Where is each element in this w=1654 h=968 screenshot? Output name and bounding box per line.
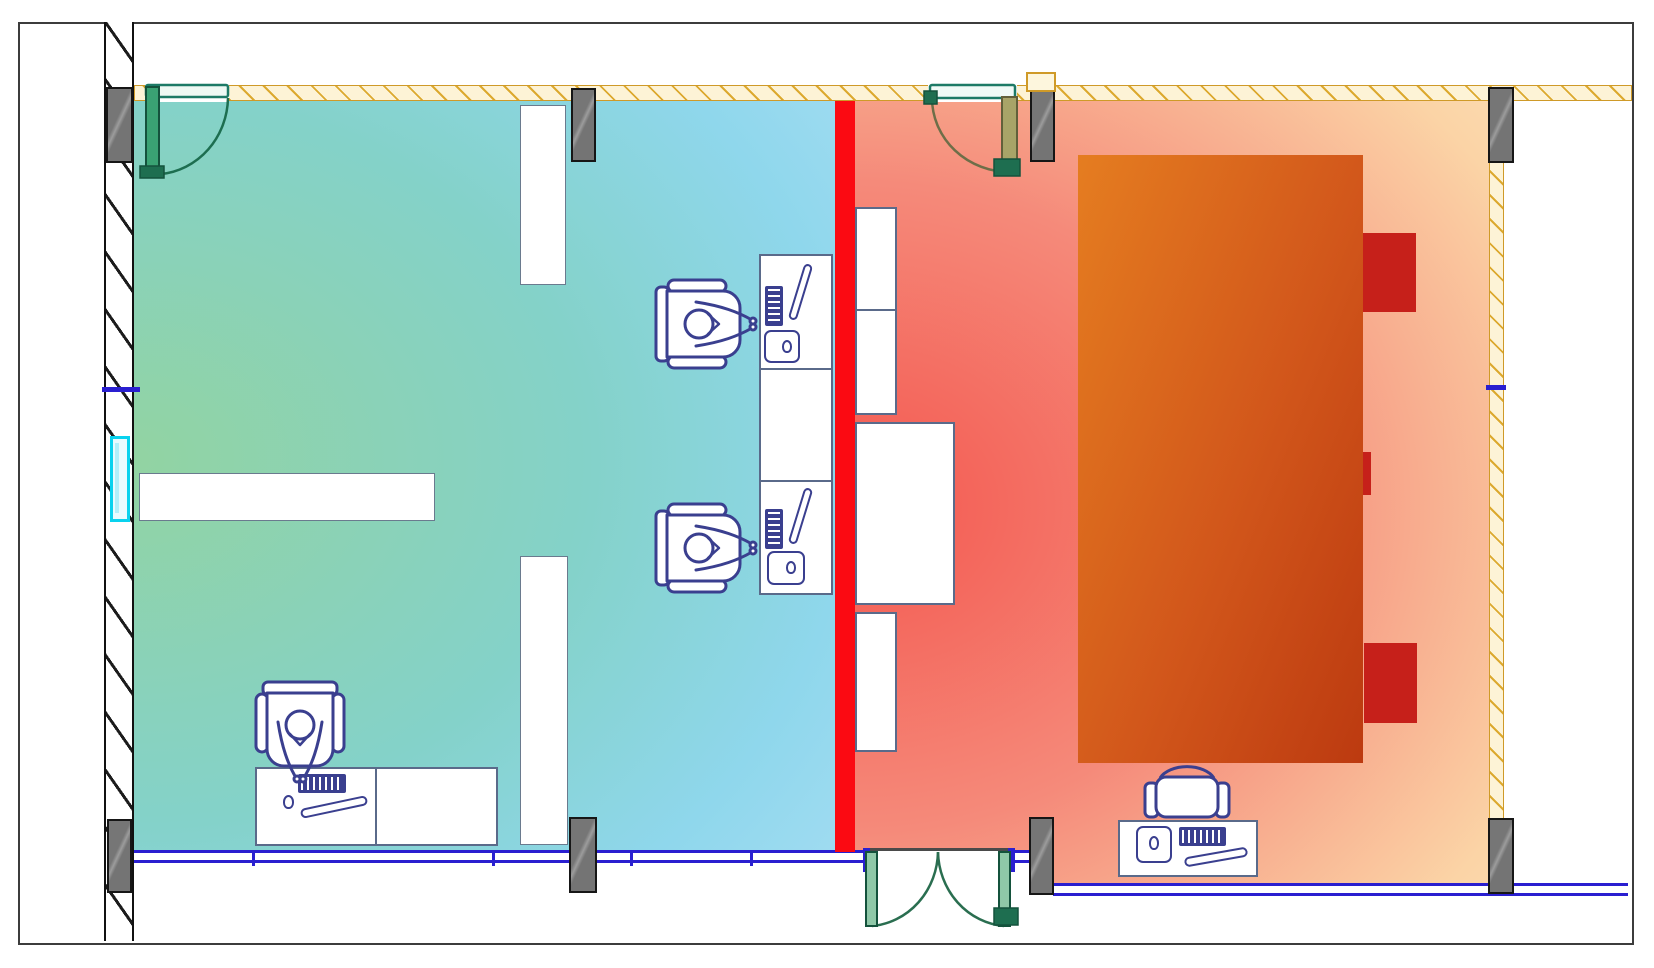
side-desk	[855, 309, 897, 415]
door-swing-arc	[161, 98, 228, 174]
column	[1029, 817, 1054, 895]
curtain-wall-bottom-right	[1053, 883, 1628, 896]
column	[1488, 818, 1514, 894]
side-desk	[855, 612, 897, 752]
desk-keyboard	[1179, 827, 1226, 846]
wall-marker	[102, 387, 140, 392]
door-top-left	[134, 78, 244, 180]
empty-chair	[1141, 765, 1233, 821]
column	[1488, 87, 1514, 163]
mouse	[782, 340, 792, 353]
mouse	[283, 795, 294, 809]
wall-shelf	[139, 473, 435, 521]
curtain-wall-bottom-left	[134, 850, 868, 863]
window-cyan	[110, 436, 130, 522]
desk-divider	[375, 769, 377, 844]
column	[107, 819, 132, 893]
door-swing-arc	[872, 852, 938, 926]
conference-table	[1078, 155, 1363, 763]
partition-wall-right	[1489, 162, 1504, 820]
duct-box	[1026, 72, 1056, 92]
column	[1030, 89, 1055, 162]
column	[569, 817, 597, 893]
partition-wall-top	[134, 85, 1632, 101]
mouse	[1149, 836, 1159, 850]
desk-divider	[761, 480, 831, 482]
wall-marker	[1486, 385, 1506, 390]
desk-divider	[761, 368, 831, 370]
wall-mullion	[492, 853, 495, 866]
mouse	[786, 561, 796, 574]
partition-strip-bottom	[520, 556, 568, 845]
partition-strip-top	[520, 105, 566, 285]
occupant-corner-desk	[254, 680, 346, 788]
double-door-bottom	[858, 844, 1020, 938]
side-desk-large	[855, 422, 955, 605]
occupant-workstation-1	[654, 278, 762, 370]
wall-mullion	[252, 853, 255, 866]
occupant-workstation-2	[654, 502, 762, 594]
wall-mullion	[630, 853, 633, 866]
thermal-barrier	[835, 95, 855, 852]
door-top-center	[918, 78, 1030, 186]
desk-keyboard	[765, 509, 783, 549]
floor-plan-canvas	[0, 0, 1654, 968]
column	[571, 88, 596, 162]
column	[106, 87, 133, 163]
desk-keyboard	[765, 286, 783, 326]
conference-chair-top	[1363, 233, 1416, 312]
side-desk	[855, 207, 897, 311]
conference-chair-bottom	[1364, 643, 1417, 723]
wall-mullion	[750, 853, 753, 866]
